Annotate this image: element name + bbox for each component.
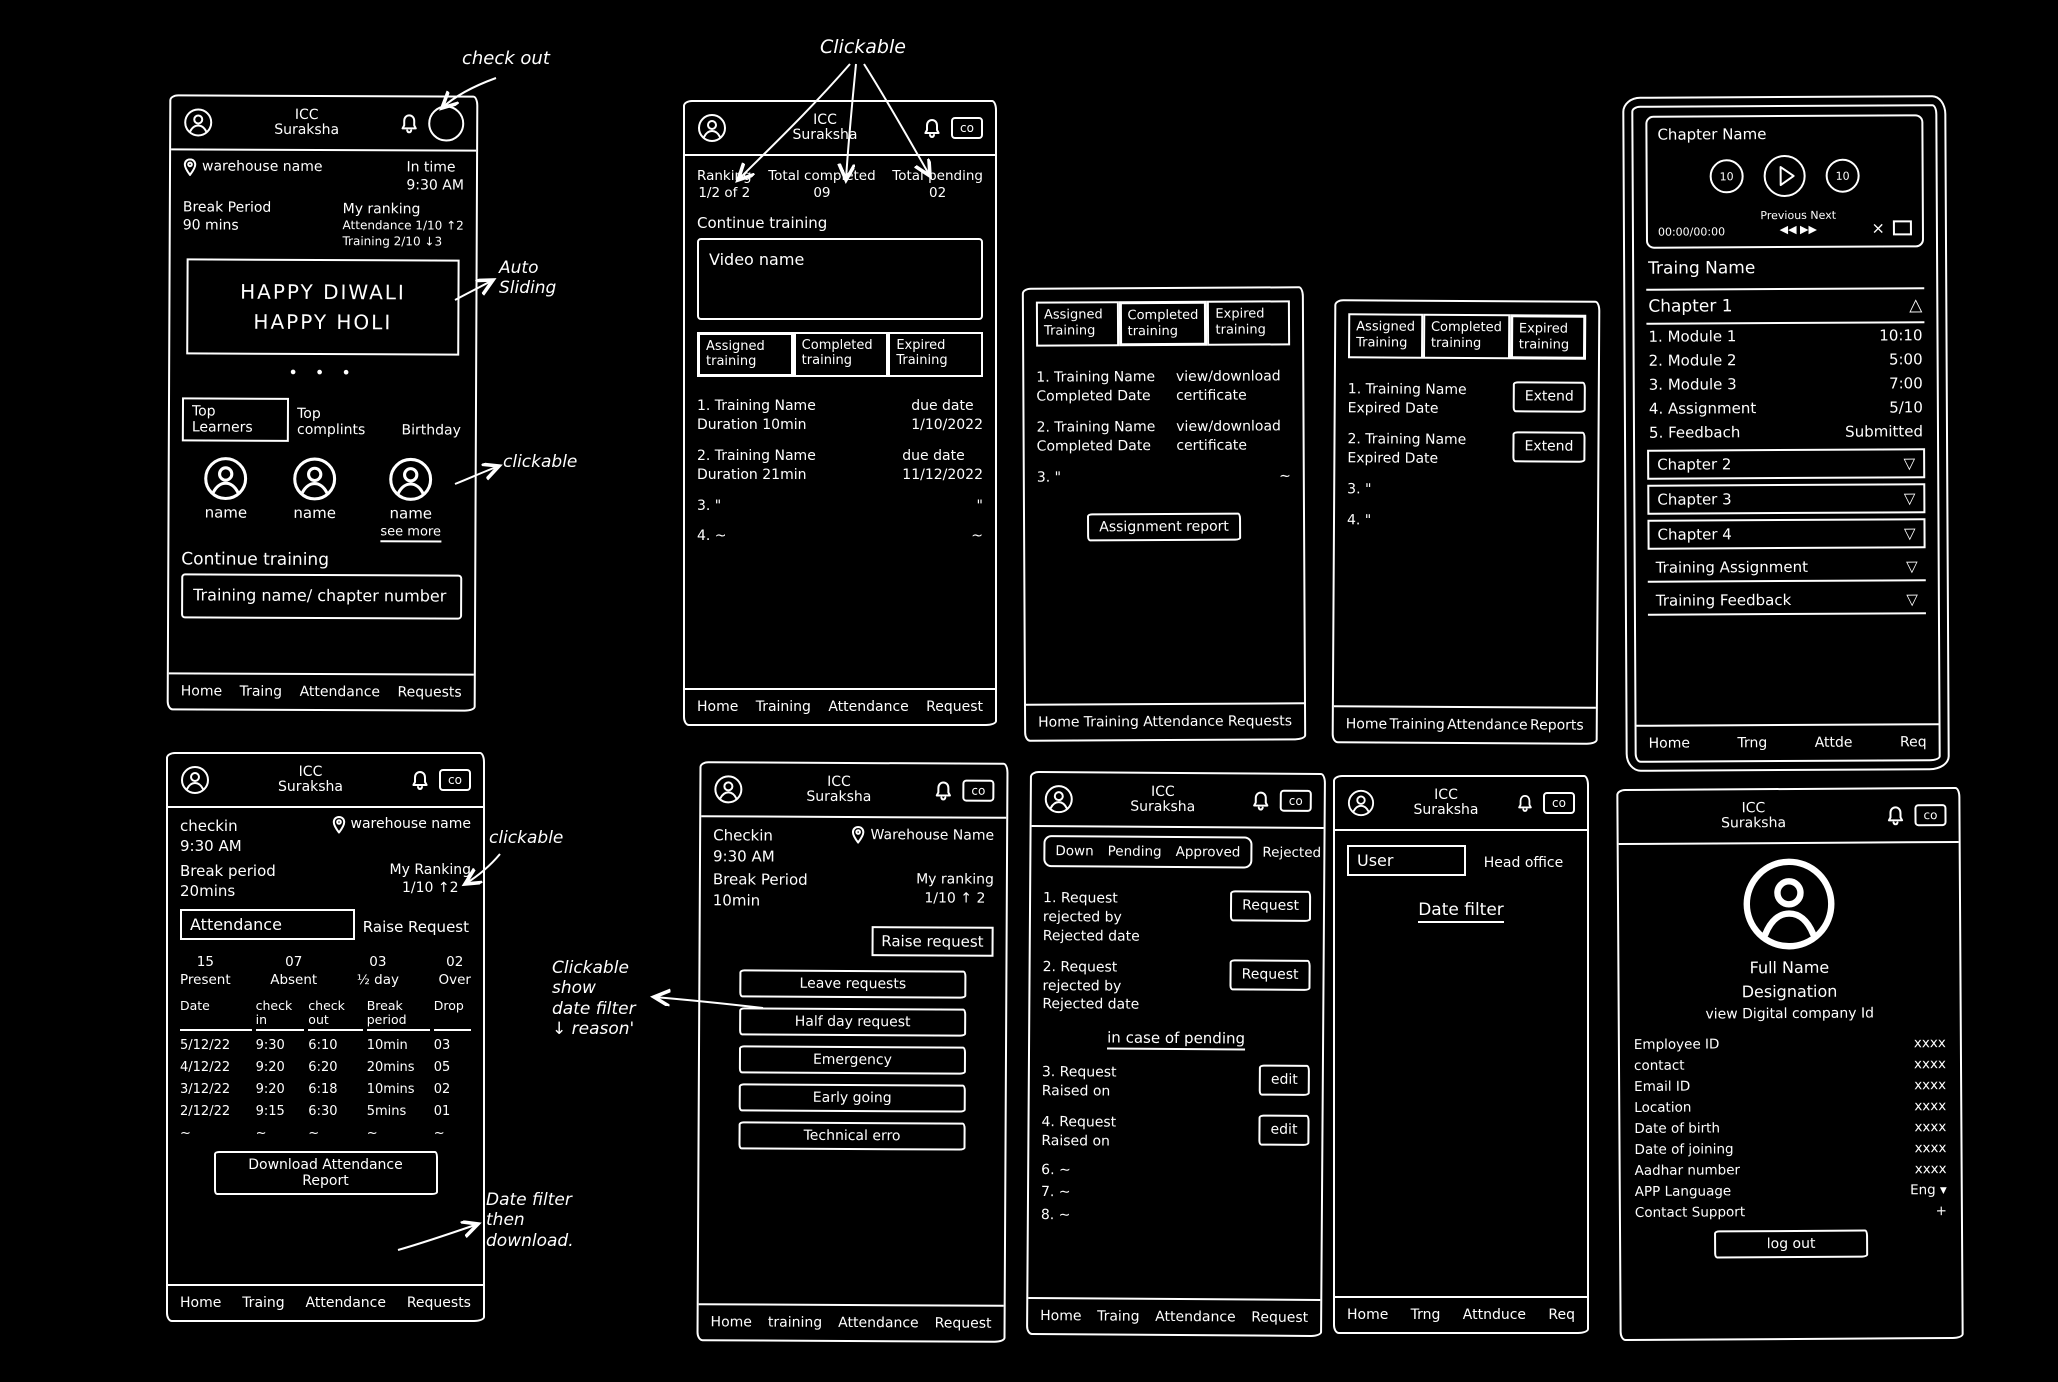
edit-button[interactable]: edit — [1258, 1115, 1309, 1146]
field-date-of-joining: Date of joiningxxxx — [1632, 1137, 1948, 1160]
cell: 5mins — [367, 1104, 430, 1119]
expand-triangle-icon[interactable]: ▽ — [1906, 557, 1918, 575]
training-list-item[interactable]: 1. Training NameExpired Date Extend — [1348, 380, 1586, 419]
half-day-request-button[interactable]: Half day request — [739, 1007, 965, 1036]
view-digital-id-link[interactable]: view Digital company Id — [1632, 1003, 1948, 1026]
playback-time: 00:00/00:00 — [1658, 225, 1725, 238]
cell: ~ — [256, 1126, 305, 1141]
close-icon[interactable]: × — [1871, 218, 1885, 237]
tab-expired-training[interactable]: Expired training — [1207, 300, 1290, 346]
nav-home[interactable]: Home — [1346, 716, 1387, 732]
nav-training[interactable]: Traing — [240, 684, 283, 700]
training-list-item[interactable]: 3. " " — [697, 497, 983, 516]
forward-10-icon[interactable]: 10 — [1826, 159, 1860, 193]
tab-expired-training[interactable]: Expired Training — [888, 332, 983, 377]
tab-head-office[interactable]: Head office — [1472, 851, 1575, 876]
col-drop: Drop — [434, 999, 471, 1031]
bell-icon[interactable] — [411, 770, 429, 790]
cell: 9:15 — [256, 1104, 305, 1119]
screen-raise-request-wireframe: ICCSuraksha co Checkin 9:30 AM Warehouse… — [696, 761, 1008, 1343]
cell: 03 — [434, 1038, 471, 1053]
cell: 6:20 — [308, 1060, 362, 1075]
chapter-4-header[interactable]: Chapter 4▽ — [1647, 518, 1925, 549]
next-label: Next — [1810, 209, 1836, 222]
greeting-banner[interactable]: HAPPY DIWALI HAPPY HOLI — [186, 259, 459, 356]
cell: ~ — [308, 1126, 362, 1141]
nav-attendance[interactable]: Attendance — [838, 1315, 919, 1331]
collapse-triangle-icon[interactable]: △ — [1909, 295, 1922, 315]
continue-training-label: Continue training — [181, 550, 462, 571]
stat-total-pending[interactable]: Total pending 02 — [892, 168, 983, 202]
field-date-of-birth: Date of birthxxxx — [1632, 1116, 1948, 1139]
tab-completed-training[interactable]: Completed training — [1423, 314, 1510, 360]
tab-user[interactable]: User — [1347, 845, 1466, 876]
screen-training-expired-wireframe: Assigned Training Completed training Exp… — [1332, 299, 1601, 745]
nav-training[interactable]: training — [768, 1315, 822, 1331]
id-card-icon[interactable]: co — [1280, 790, 1312, 812]
request-item: 1. Request rejected by Rejected date Req… — [1043, 889, 1311, 948]
avatar-icon — [388, 457, 434, 503]
tab-attendance[interactable]: Attendance — [180, 909, 355, 940]
tab-down[interactable]: Down — [1055, 843, 1093, 859]
bottom-nav: Home Training Attendance Reports — [1334, 705, 1596, 743]
technical-error-button[interactable]: Technical erro — [739, 1121, 965, 1150]
nav-home[interactable]: Home — [711, 1314, 752, 1330]
module-row[interactable]: 5. FeedbachSubmitted — [1647, 419, 1925, 444]
nav-attendance[interactable]: Attendance — [828, 699, 908, 715]
assignment-report-button[interactable]: Assignment report — [1087, 512, 1241, 541]
tab-assigned-training[interactable]: Assigned Training — [1348, 313, 1423, 359]
app-title: ICCSuraksha — [220, 765, 401, 794]
nav-home[interactable]: Home — [1040, 1308, 1081, 1324]
checkin-time: 9:30 AM — [180, 836, 242, 856]
warehouse-name: warehouse name — [351, 816, 471, 834]
my-ranking-value[interactable]: 1/10 ↑2 — [390, 879, 471, 897]
nav-home[interactable]: Home — [1347, 1307, 1388, 1323]
nav-home[interactable]: Home — [180, 1295, 221, 1311]
request-item: 3. Request Raised on edit — [1042, 1063, 1310, 1103]
field-employee-id: Employee IDxxxx — [1632, 1032, 1948, 1055]
screen-profile-wireframe: ICCSuraksha co Full Name Designation vie… — [1616, 787, 1963, 1341]
bottom-nav: Home Training Attendance Requests — [1026, 702, 1304, 739]
tab-top-learners[interactable]: Top Learners — [182, 398, 289, 442]
learner-name: name — [389, 505, 432, 523]
request-item: 6. ~ — [1041, 1159, 1309, 1183]
cell: 9:20 — [256, 1082, 305, 1097]
request-item: 7. ~ — [1041, 1181, 1309, 1205]
chapter-name-label: Chapter Name — [1657, 124, 1911, 143]
warehouse-name: warehouse name — [202, 158, 323, 177]
app-bar: ICCSuraksha — [171, 96, 476, 151]
location-pin-icon — [852, 826, 866, 844]
bottom-nav: Home Traing Attendance Requests — [168, 1284, 483, 1320]
nav-training[interactable]: Traing — [242, 1295, 284, 1311]
nav-attendance[interactable]: Attendance — [1155, 1309, 1236, 1326]
col-check-out: check out — [308, 999, 362, 1031]
field-aadhar-number: Aadhar numberxxxx — [1633, 1158, 1949, 1181]
certificate-link[interactable]: view/download certificate — [1176, 368, 1290, 406]
video-player: Chapter Name 10 10 00:00/00:00 Previous … — [1645, 114, 1924, 248]
learner-card[interactable]: name — [292, 456, 338, 542]
date-filter-link[interactable]: Date filter — [1418, 900, 1504, 923]
tab-approved[interactable]: Approved — [1176, 844, 1241, 860]
extend-button[interactable]: Extend — [1512, 431, 1585, 462]
early-going-button[interactable]: Early going — [739, 1083, 965, 1112]
annotation-date-filter-reason: Clickable show date filter ↓ reason' — [552, 958, 636, 1040]
bell-icon[interactable] — [400, 113, 418, 133]
designation: Designation — [1631, 979, 1947, 1005]
bell-icon[interactable] — [1517, 794, 1533, 812]
app-bar: ICCSuraksha co — [701, 763, 1006, 819]
field-contact: contactxxxx — [1632, 1053, 1948, 1076]
expand-triangle-icon[interactable]: ▽ — [1904, 489, 1916, 507]
nav-requests[interactable]: Requests — [1228, 713, 1292, 729]
certificate-link[interactable]: view/download certificate — [1176, 417, 1290, 455]
id-card-icon[interactable]: co — [1543, 792, 1575, 814]
my-ranking-label: My ranking — [343, 200, 464, 219]
module-row[interactable]: 4. Assignment5/10 — [1647, 395, 1925, 420]
tab-assigned-training[interactable]: Assigned Training — [1036, 301, 1119, 347]
bell-icon[interactable] — [923, 118, 941, 138]
pending-note: in case of pending — [1107, 1029, 1245, 1051]
bottom-nav: Home Trng Attnduce Req — [1335, 1296, 1587, 1332]
nav-home[interactable]: Home — [1038, 714, 1079, 730]
nav-attendance[interactable]: Attendance — [1447, 717, 1528, 733]
training-feedback-row[interactable]: Training Feedback▽ — [1648, 586, 1926, 615]
nav-requests[interactable]: Requests — [407, 1295, 471, 1311]
annotation-date-filter-download: Date filter then download. — [486, 1190, 574, 1251]
nav-requests[interactable]: Req — [1900, 734, 1927, 750]
video-card[interactable]: Video name — [697, 238, 983, 320]
field-email-id: Email IDxxxx — [1632, 1074, 1948, 1097]
screen-request-status-wireframe: ICCSuraksha co Down Pending Approved Rej… — [1026, 771, 1326, 1337]
request-button[interactable]: Request — [1230, 959, 1311, 990]
my-ranking-label: My Ranking — [390, 861, 471, 879]
profile-icon[interactable] — [713, 774, 743, 804]
nav-training[interactable]: Trng — [1737, 735, 1767, 751]
annotation-auto-sliding: Auto Sliding — [499, 258, 556, 299]
avatar-icon — [203, 456, 249, 502]
expand-triangle-icon[interactable]: ▽ — [1906, 590, 1918, 608]
cell: 9:20 — [256, 1060, 305, 1075]
cell: 01 — [434, 1104, 471, 1119]
training-list-item[interactable]: 2. Training NameCompleted Date view/down… — [1036, 417, 1290, 456]
cell: 10min — [367, 1038, 430, 1053]
continue-training-label: Continue training — [697, 214, 983, 232]
id-card-icon[interactable]: co — [1914, 804, 1946, 826]
leave-requests-button[interactable]: Leave requests — [740, 969, 966, 998]
bottom-nav: Home Traing Attendance Request — [1028, 1297, 1320, 1335]
break-period-value: 90 mins — [183, 217, 272, 235]
app-title: ICCSuraksha — [1630, 801, 1876, 832]
nav-requests[interactable]: Request — [935, 1315, 992, 1331]
bottom-nav: Home Training Attendance Request — [685, 688, 995, 724]
nav-home[interactable]: Home — [181, 683, 222, 699]
nav-attendance[interactable]: Attendance — [1143, 714, 1224, 730]
break-period-value: 10min — [713, 890, 808, 911]
app-bar: ICCSuraksha co — [685, 102, 995, 156]
app-bar: ICCSuraksha co — [1335, 777, 1587, 831]
learner-name: name — [205, 504, 248, 522]
stat-half-day: 03½ day — [357, 954, 399, 989]
annotation-clickable: Clickable — [820, 36, 906, 59]
col-break-period: Break period — [367, 999, 430, 1031]
ranking-attendance: Attendance 1/10 ↑2 — [343, 218, 464, 234]
nav-requests[interactable]: Requests — [398, 684, 462, 700]
tab-pending[interactable]: Pending — [1108, 844, 1162, 860]
nav-attendance[interactable]: Attnduce — [1463, 1307, 1526, 1323]
cell: 9:30 — [256, 1038, 305, 1053]
id-card-icon[interactable]: co — [962, 780, 994, 802]
learner-card[interactable]: name see more — [380, 457, 441, 543]
language-dropdown[interactable]: Eng ▾ — [1910, 1182, 1947, 1198]
extend-button[interactable]: Extend — [1513, 381, 1586, 412]
request-item: 4. Request Raised on edit — [1041, 1113, 1309, 1153]
tab-completed-training[interactable]: Completed training — [794, 332, 889, 377]
app-title: ICCSuraksha — [1084, 785, 1242, 815]
cell: 10mins — [367, 1082, 430, 1097]
training-assignment-row[interactable]: Training Assignment▽ — [1648, 553, 1926, 582]
screen-attendance-wireframe: ICCSuraksha co checkin 9:30 AM warehouse… — [166, 752, 485, 1322]
nav-training[interactable]: Trng — [1411, 1307, 1441, 1323]
nav-training[interactable]: Training — [1389, 717, 1444, 733]
cell: 2/12/22 — [180, 1104, 252, 1119]
previous-label: Previous — [1760, 209, 1807, 222]
bell-icon[interactable] — [1886, 805, 1904, 825]
checkin-time: 9:30 AM — [713, 846, 775, 867]
in-time-value: 9:30 AM — [406, 177, 464, 195]
profile-icon[interactable] — [697, 113, 727, 143]
cell: ~ — [180, 1126, 252, 1141]
stat-total-completed[interactable]: Total completed 09 — [768, 168, 875, 202]
nav-reports[interactable]: Reports — [1530, 717, 1584, 733]
nav-attendance[interactable]: Attde — [1815, 735, 1853, 751]
tab-assigned-training[interactable]: Assigned training — [697, 332, 794, 377]
profile-avatar — [1741, 856, 1838, 953]
app-bar: ICCSuraksha co — [1618, 789, 1958, 845]
annotation-check-out: check out — [462, 48, 550, 70]
stat-over: 02Over — [439, 954, 471, 989]
stat-ranking[interactable]: Ranking 1/2 of 2 — [697, 168, 752, 202]
profile-icon[interactable] — [180, 765, 210, 795]
warehouse-name: Warehouse Name — [871, 826, 995, 845]
cell: 3/12/22 — [180, 1082, 252, 1097]
fullscreen-icon[interactable] — [1893, 220, 1912, 235]
carousel-dots: • • • — [182, 363, 463, 383]
nav-requests[interactable]: Request — [1251, 1310, 1308, 1326]
training-list-item[interactable]: 3. " ~ — [1037, 467, 1291, 487]
tab-rejected[interactable]: Rejected — [1262, 845, 1321, 861]
cell: 6:30 — [308, 1104, 362, 1119]
chapter-1-header[interactable]: Chapter 1 △ — [1646, 287, 1924, 324]
play-icon[interactable] — [1762, 153, 1808, 199]
my-ranking-value: 1/10 ↑ 2 — [916, 889, 994, 908]
see-more-link[interactable]: see more — [380, 525, 441, 543]
edit-button[interactable]: edit — [1259, 1065, 1310, 1096]
forward-icon[interactable]: ▶▶ — [1800, 223, 1817, 236]
break-period-label: Break Period — [183, 199, 272, 217]
bell-icon[interactable] — [1252, 791, 1270, 811]
cell: ~ — [367, 1126, 430, 1141]
annotation-clickable: clickable — [503, 452, 577, 472]
rewind-icon[interactable]: ◀◀ — [1780, 223, 1797, 236]
chapter-2-header[interactable]: Chapter 2▽ — [1647, 448, 1925, 479]
cell: 6:10 — [308, 1038, 362, 1053]
bottom-nav: Home Traing Attendance Requests — [169, 672, 474, 709]
col-check-in: check in — [256, 999, 305, 1031]
download-attendance-report-button[interactable]: Download Attendance Report — [214, 1151, 438, 1195]
request-button[interactable]: Request — [1230, 890, 1311, 921]
training-list-item[interactable]: 1. Training NameCompleted Date view/down… — [1036, 368, 1290, 407]
break-period-label: Break Period — [713, 869, 808, 890]
nav-requests[interactable]: Req — [1548, 1307, 1575, 1323]
nav-training[interactable]: Training — [1084, 714, 1139, 730]
screen-home-wireframe: ICCSuraksha warehouse name In time 9:30 … — [167, 94, 479, 711]
module-row[interactable]: 3. Module 37:00 — [1647, 371, 1925, 396]
app-bar: ICCSuraksha co — [168, 754, 483, 808]
tab-raise-request[interactable]: Raise Request — [361, 914, 471, 940]
my-ranking-label: My ranking — [916, 870, 994, 889]
stat-present: 15Present — [180, 954, 231, 989]
cell: 6:18 — [308, 1082, 362, 1097]
learner-card[interactable]: name — [203, 456, 249, 542]
field-location: Locationxxxx — [1632, 1095, 1948, 1118]
break-period-label: Break period — [180, 861, 276, 881]
expand-triangle-icon[interactable]: ▽ — [1904, 524, 1916, 542]
nav-requests[interactable]: Request — [926, 699, 983, 715]
training-name-label: Traing Name — [1648, 257, 1922, 278]
nav-attendance[interactable]: Attendance — [300, 684, 381, 700]
nav-training[interactable]: Traing — [1097, 1308, 1140, 1324]
training-list-item[interactable]: 4. " — [1347, 511, 1585, 531]
tab-top-complints[interactable]: Top complints — [295, 402, 394, 442]
bell-icon[interactable] — [934, 780, 952, 800]
training-list-item[interactable]: 3. " — [1347, 480, 1585, 500]
request-item: 8. ~ — [1041, 1204, 1309, 1228]
training-list-item[interactable]: 2. Training NameDuration 21min due date1… — [697, 447, 983, 485]
app-title: ICCSuraksha — [737, 113, 913, 142]
cell: ~ — [434, 1126, 471, 1141]
profile-icon[interactable] — [1044, 784, 1074, 814]
emergency-button[interactable]: Emergency — [739, 1045, 965, 1074]
annotation-clickable: clickable — [489, 828, 563, 848]
stat-absent: 07Absent — [270, 954, 317, 989]
app-title: ICCSuraksha — [223, 108, 390, 138]
break-period-value: 20mins — [180, 881, 276, 901]
plus-icon[interactable]: + — [1936, 1203, 1947, 1219]
id-card-icon[interactable]: co — [951, 117, 983, 139]
cell: 20mins — [367, 1060, 430, 1075]
full-name: Full Name — [1631, 955, 1947, 981]
expand-triangle-icon[interactable]: ▽ — [1904, 454, 1916, 472]
avatar-icon — [292, 456, 338, 502]
id-card-icon[interactable]: co — [439, 769, 471, 791]
attendance-table: Date check in check out Break period Dro… — [180, 999, 471, 1141]
request-item: 2. Request rejected by Rejected date Req… — [1042, 958, 1310, 1017]
screen-user-filter-wireframe: ICCSuraksha co User Head office Date fil… — [1333, 775, 1589, 1334]
training-list-item[interactable]: 1. Training NameDuration 10min due date1… — [697, 397, 983, 435]
chapter-3-header[interactable]: Chapter 3▽ — [1647, 483, 1925, 514]
profile-icon[interactable] — [1347, 789, 1375, 817]
tab-birthday[interactable]: Birthday — [399, 419, 462, 443]
field-contact-support[interactable]: Contact Support+ — [1633, 1200, 1949, 1223]
cell: 4/12/22 — [180, 1060, 252, 1075]
training-list-item[interactable]: 2. Training NameExpired Date Extend — [1347, 430, 1585, 469]
profile-icon[interactable] — [183, 107, 213, 137]
check-out-button[interactable] — [428, 105, 464, 141]
screen-training-assigned-wireframe: ICCSuraksha co Ranking 1/2 of 2 Total co… — [683, 100, 997, 726]
module-row[interactable]: 1. Module 110:10 — [1646, 323, 1924, 348]
col-date: Date — [180, 999, 252, 1031]
learner-name: name — [293, 504, 336, 522]
tab-expired-training[interactable]: Expired training — [1510, 314, 1587, 360]
checkin-label: Checkin — [713, 825, 775, 846]
ranking-training: Training 2/10 ↓3 — [342, 234, 463, 250]
app-title: ICCSuraksha — [753, 775, 924, 805]
app-title: ICCSuraksha — [1385, 788, 1507, 817]
module-row[interactable]: 2. Module 25:00 — [1647, 347, 1925, 372]
tab-raise-request[interactable]: Raise request — [871, 926, 993, 957]
tab-completed-training[interactable]: Completed training — [1118, 301, 1207, 347]
field-app-language[interactable]: APP LanguageEng ▾ — [1633, 1179, 1949, 1202]
location-pin-icon — [332, 816, 346, 834]
continue-training-card[interactable]: Training name/ chapter number — [181, 574, 462, 620]
app-bar: ICCSuraksha co — [1032, 773, 1324, 829]
checkin-label: checkin — [180, 816, 242, 836]
nav-training[interactable]: Training — [756, 699, 811, 715]
cell: 02 — [434, 1082, 471, 1097]
cell: 05 — [434, 1060, 471, 1075]
bottom-nav: Home training Attendance Request — [698, 1303, 1003, 1341]
bottom-nav: Home Trng Attde Req — [1637, 723, 1939, 761]
nav-home[interactable]: Home — [697, 699, 738, 715]
in-time-label: In time — [406, 159, 464, 177]
nav-home[interactable]: Home — [1649, 736, 1690, 752]
nav-attendance[interactable]: Attendance — [306, 1295, 386, 1311]
cell: 5/12/22 — [180, 1038, 252, 1053]
training-list-item[interactable]: 4. ~ ~ — [697, 527, 983, 546]
rewind-10-icon[interactable]: 10 — [1710, 159, 1744, 193]
location-pin-icon — [183, 158, 197, 176]
screen-training-completed-wireframe: Assigned Training Completed training Exp… — [1022, 286, 1306, 741]
log-out-button[interactable]: log out — [1714, 1230, 1868, 1259]
screen-chapters-wireframe: Chapter Name 10 10 00:00/00:00 Previous … — [1631, 104, 1940, 763]
